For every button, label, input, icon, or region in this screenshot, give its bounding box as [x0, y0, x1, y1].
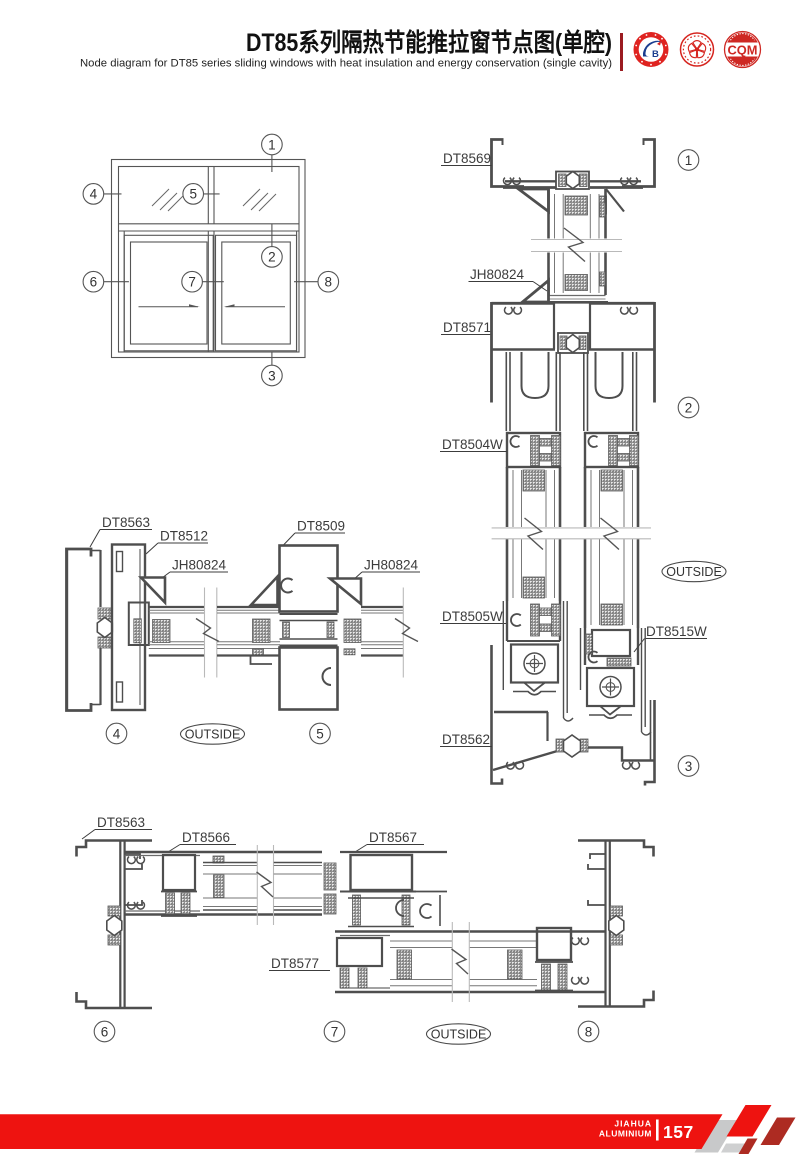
svg-text:CQM: CQM [728, 43, 758, 58]
svg-text:JH80824: JH80824 [364, 558, 419, 573]
svg-text:4: 4 [90, 187, 98, 202]
svg-text:JH80824: JH80824 [470, 267, 525, 282]
svg-text:6: 6 [101, 1024, 109, 1039]
svg-text:7: 7 [188, 275, 196, 290]
svg-text:4: 4 [113, 726, 121, 741]
svg-text:OUTSIDE: OUTSIDE [431, 1027, 487, 1041]
svg-text:157: 157 [663, 1122, 694, 1142]
svg-text:8: 8 [325, 275, 333, 290]
svg-text:DT8504W: DT8504W [442, 437, 503, 452]
svg-text:JH80824: JH80824 [172, 558, 227, 573]
svg-text:8: 8 [585, 1024, 593, 1039]
svg-text:1: 1 [685, 153, 693, 168]
svg-text:DT8562: DT8562 [442, 732, 490, 747]
svg-text:OUTSIDE: OUTSIDE [185, 727, 241, 741]
svg-text:7: 7 [331, 1024, 339, 1039]
svg-text:3: 3 [685, 759, 693, 774]
svg-text:1: 1 [268, 137, 276, 152]
svg-text:3: 3 [268, 368, 276, 383]
svg-text:OUTSIDE: OUTSIDE [666, 565, 722, 579]
svg-text:B: B [652, 49, 659, 60]
svg-text:DT8505W: DT8505W [442, 609, 503, 624]
svg-text:6: 6 [90, 275, 98, 290]
svg-text:Node diagram for DT85 series s: Node diagram for DT85 series sliding win… [80, 58, 612, 70]
svg-text:DT8563: DT8563 [102, 515, 150, 530]
svg-text:DT8571: DT8571 [443, 320, 491, 335]
svg-text:5: 5 [189, 187, 197, 202]
svg-text:DT8509: DT8509 [297, 519, 345, 534]
svg-text:2: 2 [268, 250, 276, 265]
svg-text:DT8577: DT8577 [271, 956, 319, 971]
svg-text:5: 5 [316, 726, 324, 741]
svg-text:JIAHUA: JIAHUA [614, 1119, 652, 1129]
svg-text:DT85系列隔热节能推拉窗节点图(单腔): DT85系列隔热节能推拉窗节点图(单腔) [246, 28, 612, 57]
svg-text:2: 2 [685, 400, 693, 415]
svg-text:DT8567: DT8567 [369, 830, 417, 845]
svg-text:DT8566: DT8566 [182, 830, 230, 845]
svg-text:DT8569: DT8569 [443, 151, 491, 166]
svg-text:DT8563: DT8563 [97, 815, 145, 830]
svg-text:DT8512: DT8512 [160, 529, 208, 544]
svg-text:ALUMINIUM: ALUMINIUM [599, 1129, 652, 1139]
svg-text:DT8515W: DT8515W [646, 624, 707, 639]
